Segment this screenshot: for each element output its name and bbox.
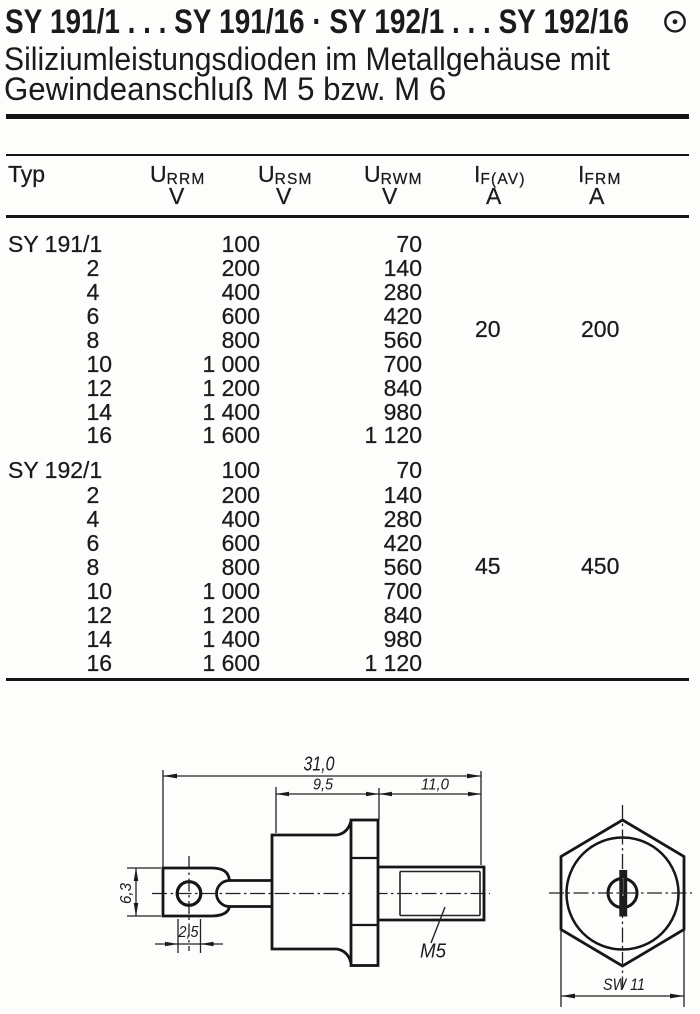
svg-text:SW 11: SW 11 — [603, 976, 645, 994]
svg-text:9,5: 9,5 — [313, 777, 333, 794]
svg-text:2,5: 2,5 — [178, 924, 199, 941]
svg-text:6,3: 6,3 — [118, 883, 135, 904]
svg-text:M5: M5 — [420, 941, 447, 963]
svg-text:11,0: 11,0 — [421, 777, 449, 794]
svg-text:31,0: 31,0 — [304, 754, 335, 776]
